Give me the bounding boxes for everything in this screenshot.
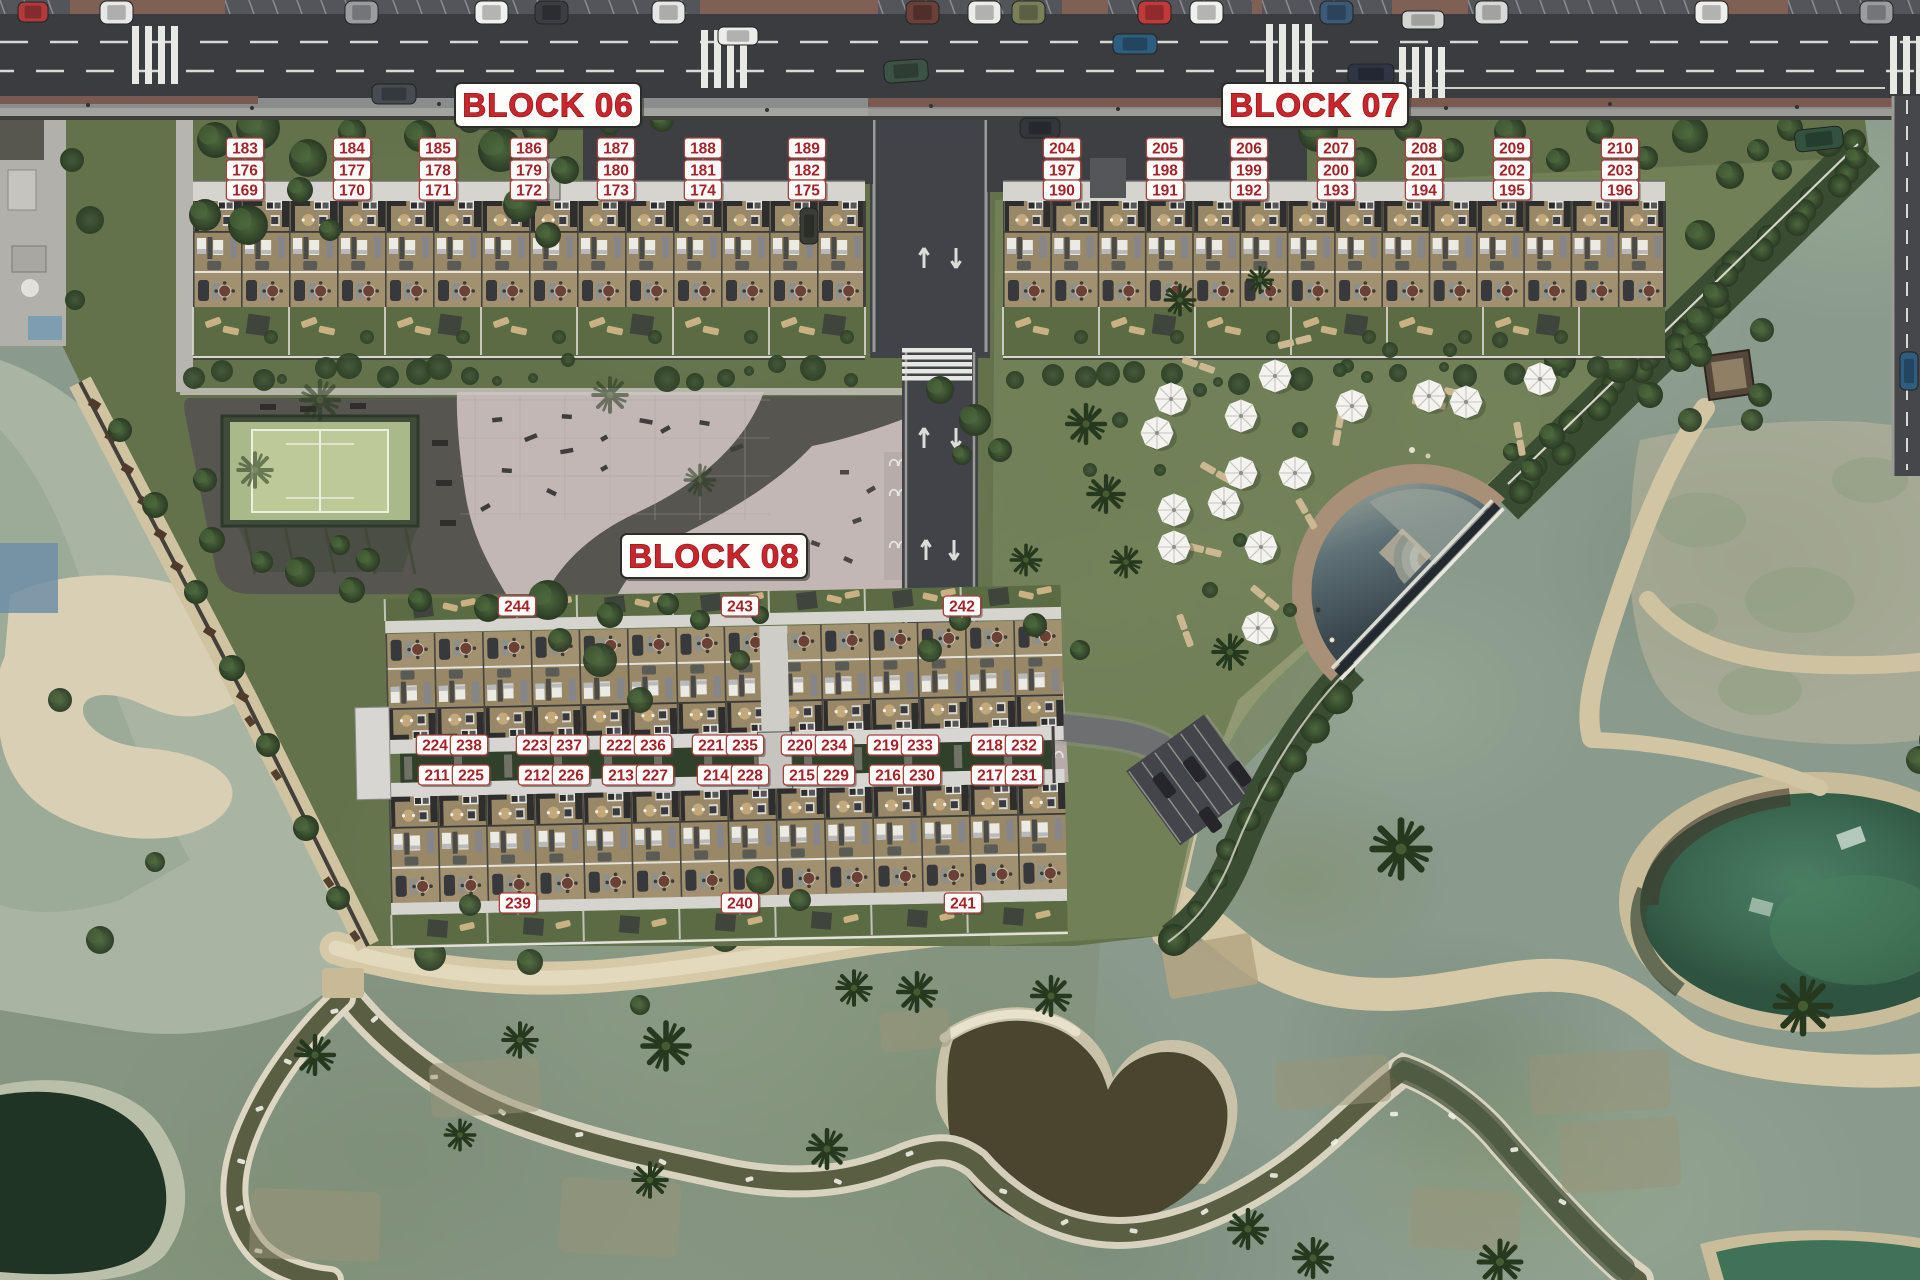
svg-text:229: 229 [823,768,849,785]
svg-text:213: 213 [608,768,634,785]
svg-text:208: 208 [1411,141,1437,158]
svg-text:225: 225 [458,768,484,785]
svg-text:BLOCK 07: BLOCK 07 [1229,87,1400,124]
svg-text:218: 218 [977,738,1003,755]
svg-text:174: 174 [690,183,716,200]
svg-text:239: 239 [505,896,531,913]
svg-text:210: 210 [1607,141,1633,158]
svg-text:232: 232 [1011,738,1037,755]
svg-text:172: 172 [516,183,542,200]
svg-text:182: 182 [794,163,820,180]
svg-text:169: 169 [232,183,258,200]
svg-text:194: 194 [1411,183,1437,200]
svg-text:205: 205 [1152,141,1178,158]
svg-text:226: 226 [558,768,584,785]
svg-text:223: 223 [522,738,548,755]
svg-text:215: 215 [789,768,815,785]
svg-text:238: 238 [456,738,482,755]
svg-text:217: 217 [977,768,1003,785]
svg-text:203: 203 [1607,163,1633,180]
svg-text:180: 180 [603,163,629,180]
svg-text:237: 237 [556,738,582,755]
svg-text:240: 240 [727,896,753,913]
svg-text:211: 211 [424,768,449,785]
svg-text:188: 188 [690,141,716,158]
svg-text:BLOCK 06: BLOCK 06 [462,87,633,124]
svg-text:179: 179 [516,163,542,180]
svg-text:195: 195 [1499,183,1525,200]
svg-text:227: 227 [642,768,668,785]
svg-text:189: 189 [794,141,820,158]
svg-text:212: 212 [524,768,550,785]
svg-text:214: 214 [703,768,729,785]
svg-text:202: 202 [1499,163,1525,180]
svg-text:204: 204 [1049,141,1075,158]
svg-text:231: 231 [1011,768,1037,785]
svg-text:197: 197 [1049,163,1075,180]
svg-text:178: 178 [425,163,451,180]
svg-text:207: 207 [1323,141,1349,158]
svg-text:234: 234 [821,738,847,755]
svg-text:235: 235 [732,738,758,755]
svg-text:191: 191 [1152,183,1178,200]
svg-text:199: 199 [1236,163,1262,180]
svg-text:171: 171 [425,183,451,200]
svg-text:175: 175 [794,183,820,200]
svg-text:187: 187 [603,141,629,158]
svg-text:241: 241 [950,896,976,913]
svg-text:192: 192 [1236,183,1262,200]
svg-text:190: 190 [1049,183,1075,200]
svg-text:196: 196 [1607,183,1633,200]
svg-text:177: 177 [339,163,365,180]
svg-text:170: 170 [339,183,365,200]
svg-text:173: 173 [603,183,629,200]
svg-text:201: 201 [1411,163,1437,180]
svg-text:230: 230 [909,768,935,785]
svg-text:200: 200 [1323,163,1349,180]
svg-text:183: 183 [232,141,258,158]
svg-text:216: 216 [875,768,901,785]
svg-text:221: 221 [698,738,724,755]
svg-text:193: 193 [1323,183,1349,200]
svg-text:206: 206 [1236,141,1262,158]
svg-text:181: 181 [690,163,716,180]
svg-text:236: 236 [640,738,666,755]
svg-text:233: 233 [907,738,933,755]
svg-text:184: 184 [339,141,365,158]
svg-text:176: 176 [232,163,258,180]
svg-text:224: 224 [422,738,448,755]
svg-text:243: 243 [727,599,753,616]
svg-text:186: 186 [516,141,542,158]
svg-text:220: 220 [787,738,813,755]
svg-text:198: 198 [1152,163,1178,180]
svg-text:185: 185 [425,141,451,158]
svg-text:BLOCK 08: BLOCK 08 [628,538,799,575]
svg-text:228: 228 [737,768,763,785]
svg-text:222: 222 [606,738,632,755]
svg-text:209: 209 [1499,141,1525,158]
svg-text:242: 242 [949,599,975,616]
svg-text:219: 219 [873,738,899,755]
svg-text:244: 244 [504,599,530,616]
